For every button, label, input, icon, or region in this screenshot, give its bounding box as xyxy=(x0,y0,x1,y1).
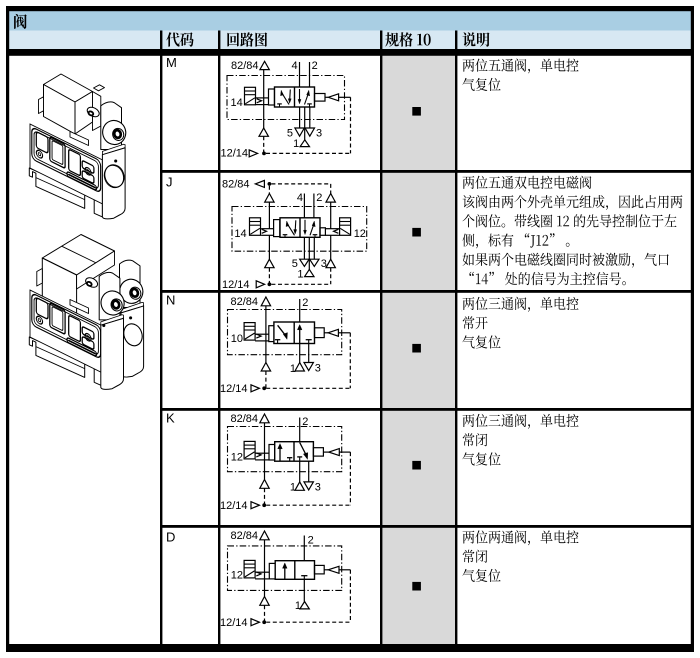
svg-text:82/84: 82/84 xyxy=(231,296,259,308)
svg-text:2: 2 xyxy=(308,534,314,546)
svg-text:1: 1 xyxy=(293,138,299,150)
svg-text:12: 12 xyxy=(231,569,243,581)
svg-text:12/14: 12/14 xyxy=(220,500,248,512)
svg-text:14: 14 xyxy=(234,228,246,240)
svg-text:14: 14 xyxy=(231,97,243,109)
svg-text:J: J xyxy=(166,175,173,190)
svg-text:3: 3 xyxy=(315,481,321,493)
svg-text:2: 2 xyxy=(302,297,308,309)
svg-text:2: 2 xyxy=(312,60,318,72)
svg-text:82/84: 82/84 xyxy=(231,413,259,425)
svg-text:K: K xyxy=(166,411,175,426)
svg-text:12/14: 12/14 xyxy=(220,617,248,629)
svg-text:12/14: 12/14 xyxy=(222,279,250,291)
svg-text:12: 12 xyxy=(354,228,366,240)
svg-text:82/84: 82/84 xyxy=(231,530,259,542)
svg-text:1: 1 xyxy=(297,269,303,281)
svg-text:1: 1 xyxy=(290,363,296,375)
svg-text:N: N xyxy=(166,293,175,308)
svg-text:82/84: 82/84 xyxy=(222,178,250,190)
svg-text:5: 5 xyxy=(287,128,293,140)
svg-text:D: D xyxy=(166,530,175,545)
svg-text:12/14: 12/14 xyxy=(220,383,248,395)
svg-text:4: 4 xyxy=(297,192,303,204)
svg-text:1: 1 xyxy=(290,482,296,494)
svg-text:82/84: 82/84 xyxy=(231,60,259,72)
svg-text:4: 4 xyxy=(291,60,297,72)
svg-text:M: M xyxy=(166,55,177,70)
svg-text:3: 3 xyxy=(316,128,322,140)
svg-text:2: 2 xyxy=(316,192,322,204)
svg-text:12: 12 xyxy=(231,452,243,464)
svg-text:3: 3 xyxy=(315,363,321,375)
svg-text:12/14: 12/14 xyxy=(220,148,248,160)
svg-text:1: 1 xyxy=(295,600,301,612)
svg-text:10: 10 xyxy=(231,333,243,345)
